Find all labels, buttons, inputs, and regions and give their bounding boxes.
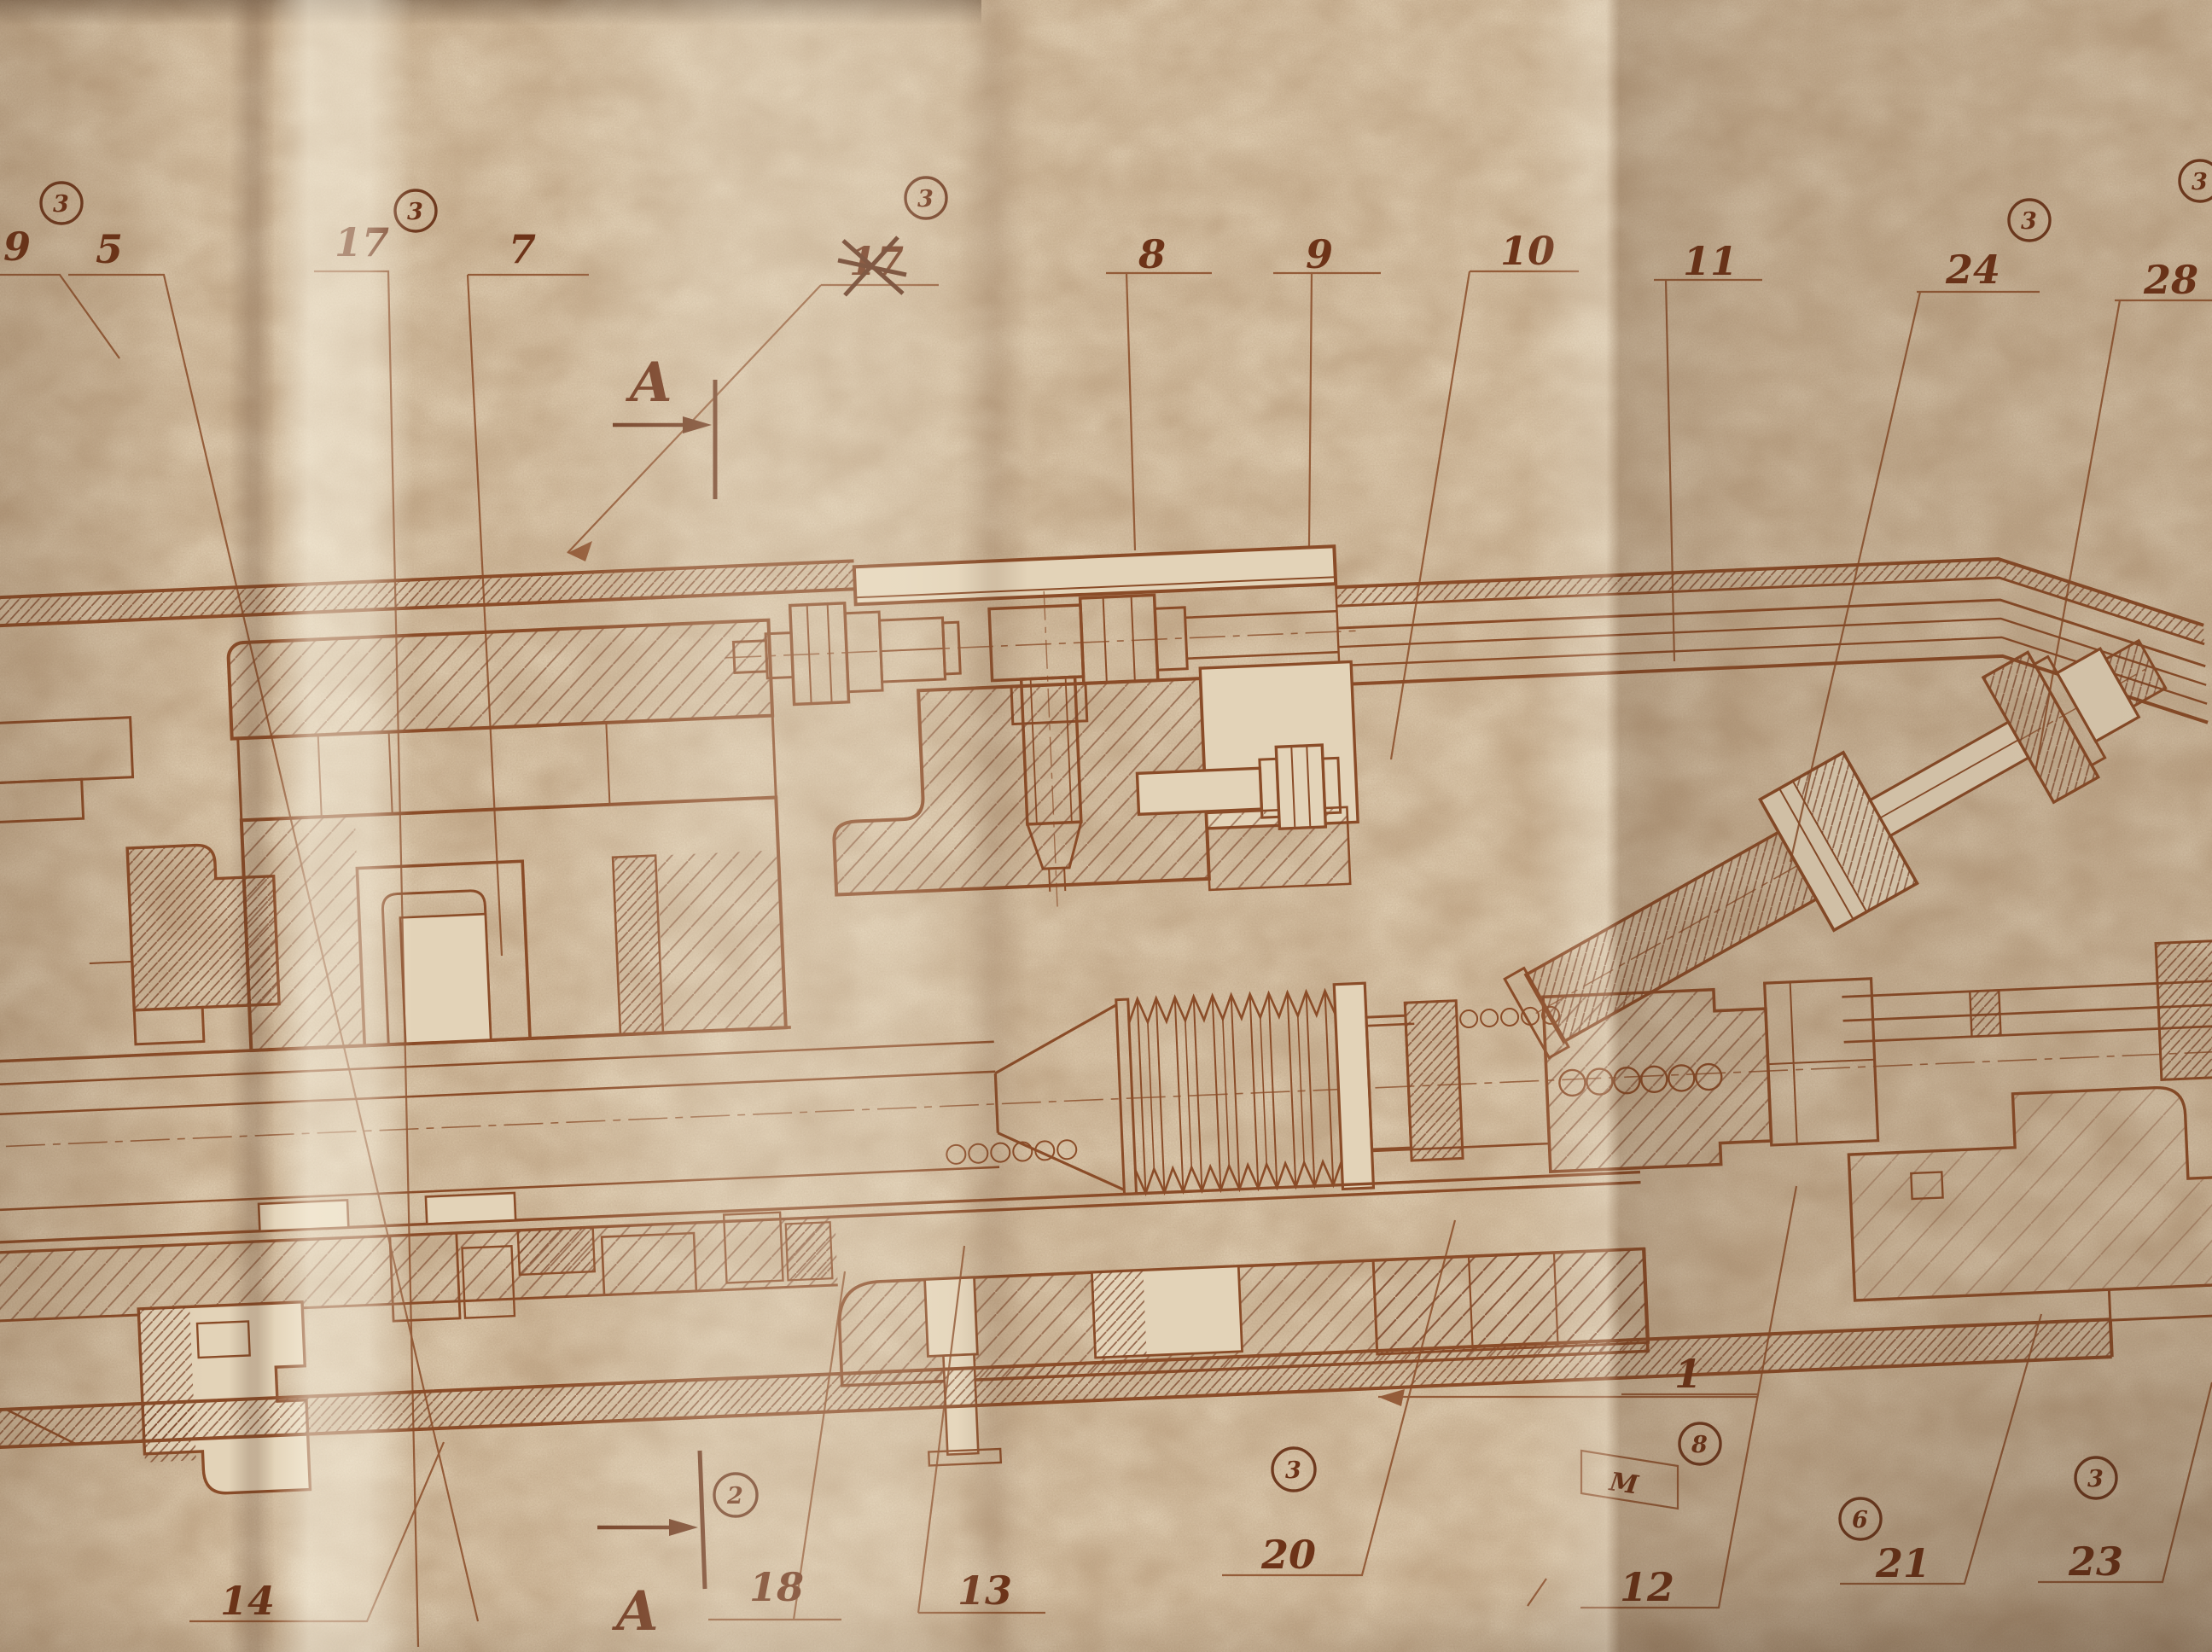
callout-20: 20: [1260, 1532, 1316, 1578]
callout-21: 21: [1875, 1540, 1930, 1586]
blueprint-drawing: A A 9 5 17 7 17 8 9 10 11 24 28 14 18 13…: [0, 0, 2212, 1652]
callout-11: 11: [1683, 238, 1738, 284]
callout-14: 14: [220, 1578, 275, 1624]
stamp-digit: 6: [1852, 1507, 1868, 1533]
callout-18: 18: [749, 1564, 804, 1610]
callout-28: 28: [2143, 257, 2198, 303]
callout-5: 5: [96, 226, 123, 272]
stamp-digit: 3: [1285, 1457, 1301, 1484]
section-letter-a-bottom: A: [612, 1579, 659, 1643]
callout-8: 8: [1138, 231, 1166, 277]
stamp-digit: 3: [2087, 1466, 2104, 1492]
stamp-digit: 8: [1691, 1432, 1708, 1458]
stamp-digit: 3: [917, 186, 934, 212]
blueprint-photo: A A 9 5 17 7 17 8 9 10 11 24 28 14 18 13…: [0, 0, 2212, 1652]
callout-10: 10: [1500, 228, 1555, 274]
callout-23: 23: [2068, 1539, 2123, 1585]
callout-24: 24: [1945, 247, 2000, 293]
callout-m: M: [1607, 1467, 1641, 1501]
callout-9: 9: [3, 224, 31, 270]
callout-1: 1: [1674, 1351, 1702, 1397]
stamp-digit: 3: [407, 199, 423, 225]
stamp-digit: 3: [53, 191, 69, 218]
callout-9b: 9: [1306, 231, 1333, 277]
callout-7: 7: [509, 226, 536, 272]
callout-17: 17: [335, 219, 389, 265]
stamp-digit: 2: [726, 1483, 743, 1509]
stamp-digit: 3: [2021, 208, 2037, 235]
callout-13: 13: [958, 1568, 1012, 1614]
stamp-digit: 3: [2192, 169, 2208, 195]
section-letter-a-top: A: [626, 351, 672, 415]
callout-12: 12: [1620, 1564, 1674, 1610]
